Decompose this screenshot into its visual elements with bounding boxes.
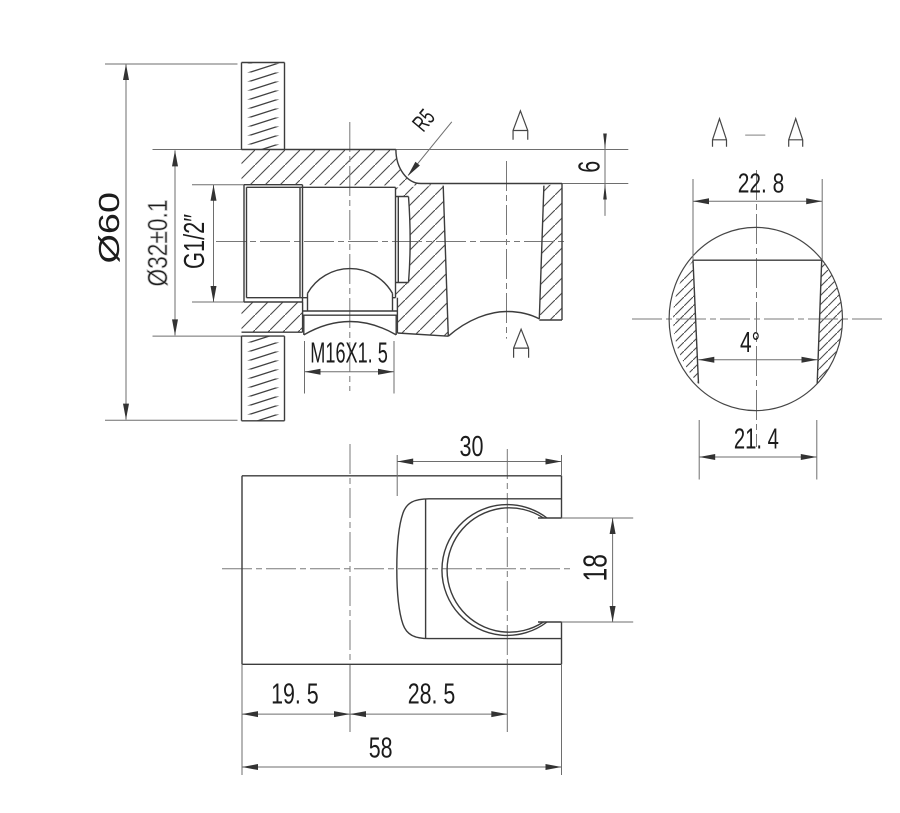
svg-text:28. 5: 28. 5 [408, 678, 456, 710]
svg-text:21. 4: 21. 4 [734, 424, 779, 456]
svg-text:Ø60: Ø60 [94, 192, 126, 264]
svg-text:22. 8: 22. 8 [738, 168, 785, 199]
svg-text:M16X1. 5: M16X1. 5 [310, 337, 388, 369]
svg-text:4°: 4° [740, 327, 760, 359]
svg-text:19. 5: 19. 5 [271, 678, 319, 710]
svg-text:6: 6 [572, 161, 607, 173]
svg-text:58: 58 [369, 733, 393, 765]
svg-text:R5: R5 [407, 104, 440, 136]
svg-text:30: 30 [460, 431, 484, 463]
svg-text:18: 18 [577, 554, 614, 582]
svg-text:G1/2″: G1/2″ [179, 214, 211, 269]
svg-text:Ø32±0.1: Ø32±0.1 [142, 200, 173, 287]
